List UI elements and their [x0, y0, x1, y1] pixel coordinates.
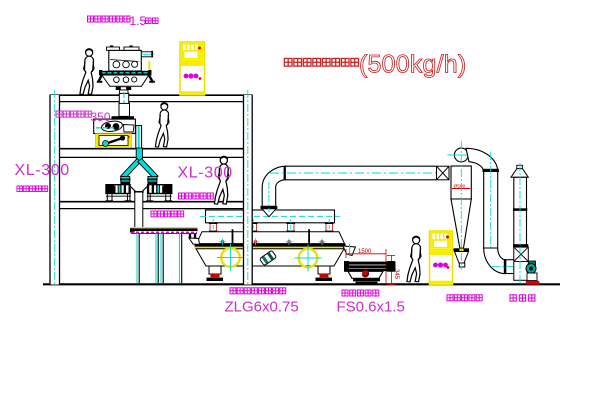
svg-text:350: 350	[91, 110, 111, 124]
svg-text:XL-300: XL-300	[178, 165, 233, 182]
svg-text:1500: 1500	[358, 249, 372, 255]
svg-text:(500kg/h): (500kg/h)	[359, 51, 466, 79]
svg-text:ZLG6x0.75: ZLG6x0.75	[225, 299, 299, 316]
svg-text:FS0.6x1.5: FS0.6x1.5	[337, 299, 405, 316]
svg-text:1.5: 1.5	[130, 14, 147, 28]
svg-text:XL-300: XL-300	[15, 162, 70, 179]
svg-text:Ø500: Ø500	[454, 184, 466, 190]
